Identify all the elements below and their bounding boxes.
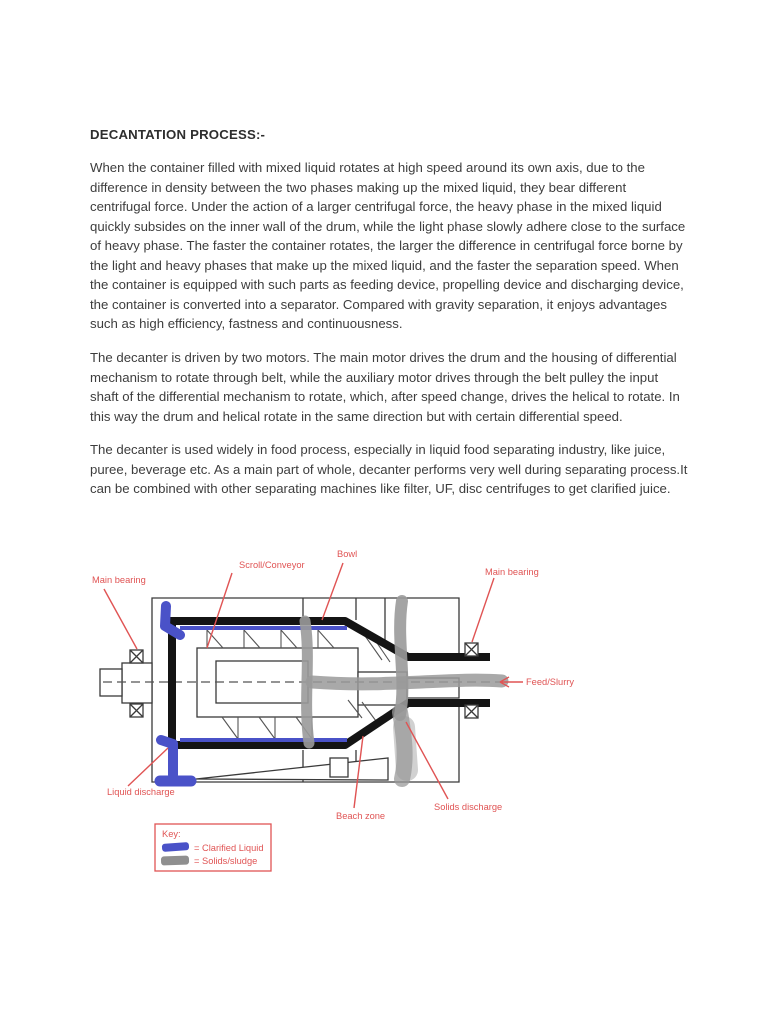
label-liquid-discharge: Liquid discharge — [107, 787, 175, 797]
label-main-bearing-left: Main bearing — [92, 575, 146, 585]
bearing-icon — [130, 650, 143, 663]
drive-shaft — [100, 663, 152, 703]
label-solids-discharge: Solids discharge — [434, 802, 502, 812]
label-bowl: Bowl — [337, 549, 357, 559]
key-swatch-solids-sludge — [161, 856, 189, 866]
key-box: Key: = Clarified Liquid = Solids/sludge — [155, 824, 271, 871]
bearing-icon — [465, 643, 478, 656]
key-label-clarified-liquid: = Clarified Liquid — [194, 843, 264, 853]
key-label-solids-sludge: = Solids/sludge — [194, 856, 257, 866]
label-main-bearing-right: Main bearing — [485, 567, 539, 577]
bearing-icon — [130, 704, 143, 717]
label-feed-slurry: Feed/Slurry — [526, 677, 574, 687]
bearing-icon — [465, 705, 478, 718]
key-title: Key: — [162, 829, 181, 839]
label-beach-zone: Beach zone — [336, 811, 385, 821]
document-page: DECANTATION PROCESS:- When the container… — [0, 0, 768, 1024]
decanter-diagram: Main bearing Scroll/Conveyor Bowl Main b… — [0, 0, 768, 1024]
label-scroll-conveyor: Scroll/Conveyor — [239, 560, 305, 570]
